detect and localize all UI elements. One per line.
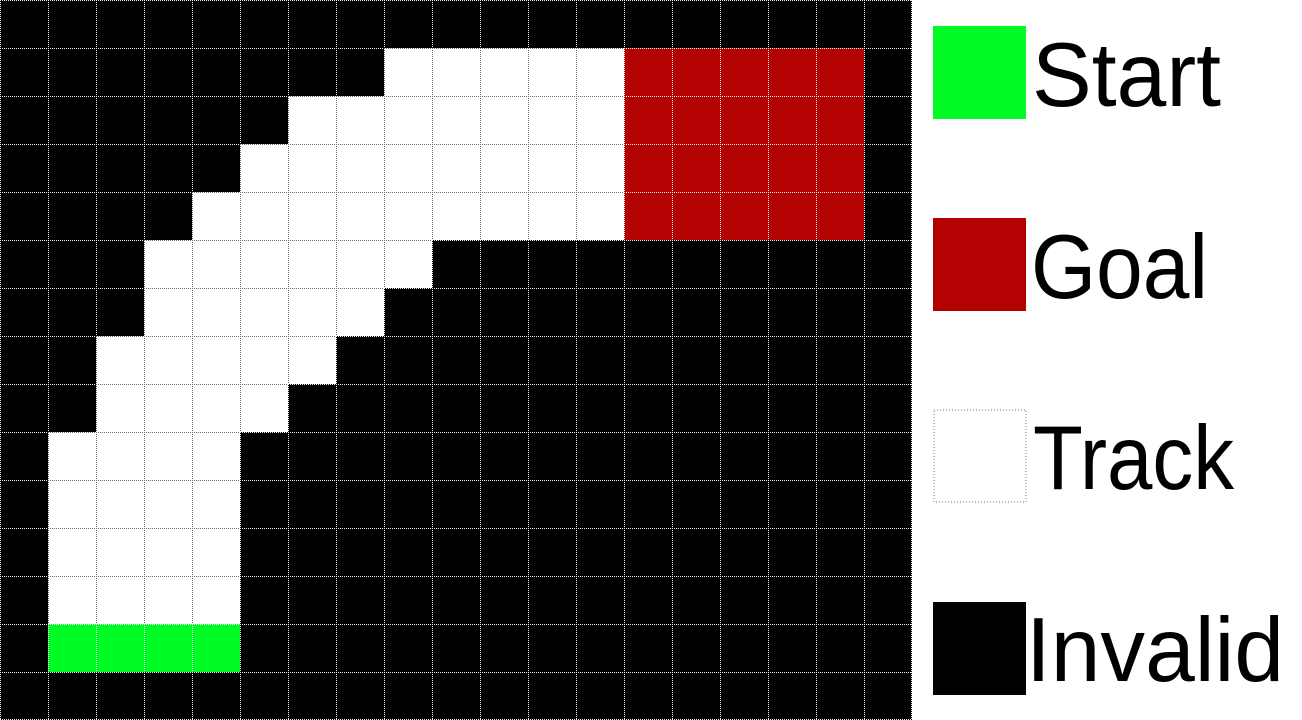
svg-text:Goal: Goal — [1031, 217, 1208, 318]
svg-text:Track: Track — [1033, 408, 1234, 509]
svg-text:Invalid: Invalid — [1026, 600, 1284, 701]
svg-text:Start: Start — [1032, 25, 1221, 126]
